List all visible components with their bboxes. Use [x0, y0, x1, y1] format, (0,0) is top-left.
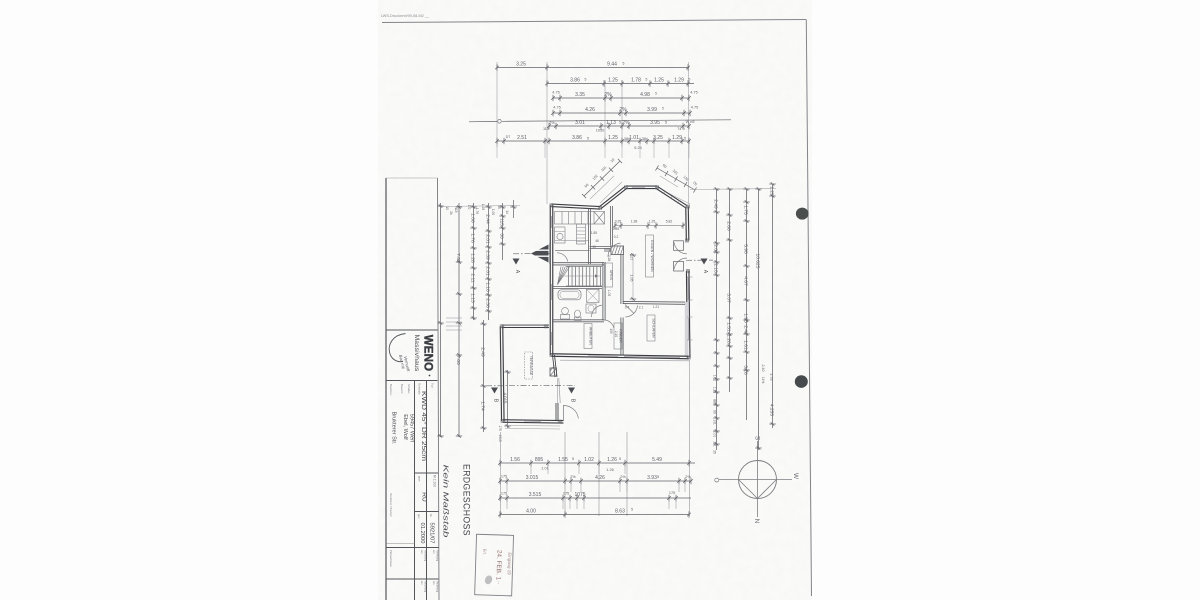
- svg-text:3.26: 3.26: [742, 365, 748, 375]
- svg-text:1.16: 1.16: [484, 282, 490, 292]
- svg-text:0.2: 0.2: [614, 235, 619, 239]
- svg-text:0.4: 0.4: [625, 306, 630, 310]
- svg-text:5: 5: [657, 475, 659, 479]
- svg-text:5: 5: [631, 508, 633, 512]
- svg-text:3.95: 3.95: [650, 120, 660, 126]
- svg-text:115: 115: [454, 207, 458, 212]
- svg-text:1.61: 1.61: [742, 340, 748, 350]
- svg-text:1.26: 1.26: [606, 468, 613, 472]
- svg-text:1.25: 1.25: [768, 186, 774, 196]
- svg-text:99: 99: [713, 410, 717, 414]
- svg-text:1.25: 1.25: [649, 220, 656, 224]
- svg-text:5: 5: [619, 121, 621, 125]
- svg-text:115: 115: [498, 218, 504, 226]
- svg-text:W: W: [792, 473, 799, 480]
- svg-text:1050: 1050: [596, 129, 604, 133]
- svg-text:Bearbeiter / Bauherr: Bearbeiter / Bauherr: [389, 493, 393, 516]
- svg-text:46: 46: [595, 239, 599, 243]
- svg-text:1.38: 1.38: [631, 220, 638, 224]
- svg-text:10: 10: [592, 245, 596, 249]
- svg-text:1.26: 1.26: [725, 334, 731, 344]
- svg-text:5: 5: [684, 137, 686, 141]
- svg-text:3.25: 3.25: [653, 135, 663, 141]
- svg-text:Änderung: Änderung: [424, 581, 428, 593]
- svg-text:2%: 2%: [622, 120, 630, 126]
- svg-text:5: 5: [585, 78, 587, 82]
- svg-text:Bauort:: Bauort:: [400, 384, 404, 394]
- svg-text:35: 35: [713, 450, 717, 454]
- svg-text:1.21: 1.21: [653, 305, 659, 309]
- svg-text:TERRASSE: TERRASSE: [529, 356, 533, 376]
- svg-text:KWD 45° DR 25cm: KWD 45° DR 25cm: [420, 391, 428, 462]
- svg-text:4.75: 4.75: [690, 91, 697, 95]
- svg-text:2%: 2%: [619, 107, 627, 113]
- svg-text:1075: 1075: [574, 492, 585, 498]
- svg-text:Straße:: Straße:: [407, 384, 411, 394]
- svg-text:14: 14: [505, 210, 509, 214]
- svg-text:1.29: 1.29: [672, 135, 682, 141]
- svg-text:1.00: 1.00: [491, 209, 495, 215]
- svg-text:2.36: 2.36: [484, 298, 490, 308]
- svg-text:2.10: 2.10: [614, 331, 618, 337]
- svg-text:2%: 2%: [620, 475, 626, 479]
- svg-text:2.11: 2.11: [469, 273, 475, 282]
- svg-text:2%: 2%: [604, 92, 612, 98]
- svg-text:1.26: 1.26: [607, 457, 617, 463]
- svg-text:24. FEB. 1··: 24. FEB. 1··: [494, 550, 502, 585]
- svg-text:Ebel, Wolf: Ebel, Wolf: [402, 414, 408, 440]
- svg-text:4.26: 4.26: [595, 475, 605, 481]
- svg-text:0.85: 0.85: [613, 227, 619, 231]
- svg-text:1.01: 1.01: [713, 375, 717, 382]
- svg-text:895: 895: [535, 457, 544, 463]
- svg-text:1.06: 1.06: [469, 213, 475, 223]
- svg-text:Nr.: Nr.: [429, 514, 433, 518]
- svg-text:5.26: 5.26: [634, 146, 641, 150]
- svg-text:1.55: 1.55: [558, 457, 568, 463]
- svg-text:38: 38: [642, 137, 646, 141]
- svg-text:SCHLAFEN: SCHLAFEN: [652, 318, 656, 338]
- svg-text:2.51: 2.51: [517, 135, 527, 141]
- svg-text:1.78: 1.78: [631, 78, 641, 84]
- svg-text:1.13: 1.13: [606, 120, 616, 126]
- svg-text:2.40: 2.40: [742, 325, 748, 335]
- svg-text:4.75: 4.75: [553, 106, 560, 110]
- svg-text:Änderung: Änderung: [424, 550, 428, 562]
- svg-text:5.82: 5.82: [666, 220, 673, 224]
- svg-text:74 0: 74 0: [677, 127, 684, 131]
- svg-text:3.86: 3.86: [572, 135, 582, 141]
- svg-text:30: 30: [498, 233, 504, 239]
- svg-text:2.66: 2.66: [725, 221, 731, 231]
- svg-text:1.01: 1.01: [541, 467, 548, 471]
- svg-text:5: 5: [655, 91, 657, 95]
- svg-text:2.44: 2.44: [484, 214, 490, 224]
- svg-text:1.85: 1.85: [591, 231, 597, 235]
- svg-text:1.05: 1.05: [607, 290, 611, 297]
- svg-text:7.00: 7.00: [455, 355, 461, 365]
- svg-text:5: 5: [587, 137, 589, 141]
- svg-text:Erl.: Erl.: [482, 549, 487, 555]
- svg-text:1.13: 1.13: [469, 293, 475, 303]
- svg-text:am: am: [432, 581, 435, 584]
- svg-text:3.35: 3.35: [575, 92, 585, 98]
- svg-text:5.98: 5.98: [742, 244, 748, 254]
- svg-text:175: 175: [498, 425, 502, 431]
- svg-text:ERDGESCHOSS: ERDGESCHOSS: [461, 464, 472, 536]
- svg-text:Eingang 19: Eingang 19: [507, 552, 513, 575]
- svg-text:4.67: 4.67: [742, 276, 748, 286]
- svg-text:5: 5: [619, 457, 621, 461]
- svg-text:105: 105: [609, 328, 613, 334]
- svg-text:ARBEITEN: ARBEITEN: [589, 327, 593, 345]
- svg-text:4.75: 4.75: [691, 106, 698, 110]
- svg-text:175: 175: [501, 492, 507, 496]
- svg-text:Änderung: Änderung: [436, 581, 440, 593]
- svg-text:KINDER: KINDER: [619, 329, 623, 343]
- svg-text:Brukterer Str.: Brukterer Str.: [391, 412, 397, 445]
- svg-text:3.07: 3.07: [725, 293, 731, 303]
- svg-text:1.51: 1.51: [725, 322, 731, 332]
- svg-text:0.25: 0.25: [615, 220, 622, 224]
- svg-text:5: 5: [623, 62, 625, 66]
- svg-text:38: 38: [624, 137, 628, 141]
- svg-text:Planverfasser: Planverfasser: [389, 550, 393, 567]
- svg-text:2%: 2%: [685, 475, 691, 479]
- svg-text:2%: 2%: [549, 121, 555, 125]
- svg-text:A: A: [702, 270, 708, 274]
- svg-text:2.07: 2.07: [629, 254, 633, 260]
- svg-text:am: am: [432, 550, 435, 553]
- svg-text:2%: 2%: [570, 475, 576, 479]
- svg-text:1.75: 1.75: [742, 205, 748, 215]
- svg-text:1.56: 1.56: [510, 457, 520, 463]
- svg-text:2.1: 2.1: [639, 306, 644, 310]
- svg-text:1.29: 1.29: [674, 78, 684, 84]
- svg-text:1.28: 1.28: [481, 204, 485, 210]
- svg-text:4.98: 4.98: [640, 92, 650, 98]
- svg-text:Typ: Typ: [431, 383, 435, 388]
- svg-text:175: 175: [563, 492, 569, 496]
- svg-text:5: 5: [665, 121, 667, 125]
- svg-text:RU: RU: [421, 492, 428, 502]
- svg-text:2.01: 2.01: [713, 431, 717, 438]
- svg-text:S: S: [754, 436, 761, 441]
- svg-text:1.25: 1.25: [654, 78, 664, 84]
- svg-text:4.75: 4.75: [769, 374, 773, 381]
- svg-text:10: 10: [445, 206, 449, 210]
- svg-text:175: 175: [669, 491, 675, 495]
- svg-text:M 1:100: M 1:100: [433, 475, 437, 487]
- svg-text:1.26: 1.26: [713, 387, 717, 394]
- svg-text:9.44: 9.44: [607, 62, 617, 68]
- svg-text:5921/07: 5921/07: [429, 523, 435, 544]
- svg-text:2.01: 2.01: [712, 244, 718, 254]
- svg-text:1.0: 1.0: [467, 205, 471, 210]
- svg-text:10.625: 10.625: [754, 254, 760, 269]
- svg-text:59457 Werl: 59457 Werl: [409, 414, 415, 443]
- svg-text:1.76: 1.76: [469, 233, 475, 243]
- svg-text:3.99: 3.99: [647, 107, 657, 113]
- svg-text:N: N: [753, 519, 760, 524]
- svg-text:W n5: W n5: [686, 120, 695, 124]
- svg-text:SPEIS: SPEIS: [609, 270, 613, 281]
- svg-text:3.515: 3.515: [529, 492, 542, 498]
- svg-text:1.55: 1.55: [742, 313, 748, 323]
- svg-text:ESSEN / WOHNEN: ESSEN / WOHNEN: [650, 240, 654, 272]
- svg-text:2.01: 2.01: [484, 266, 490, 276]
- svg-text:2.49: 2.49: [479, 347, 485, 357]
- svg-text:5: 5: [662, 107, 664, 111]
- svg-text:8.63: 8.63: [615, 509, 625, 515]
- svg-text:101: 101: [713, 441, 717, 447]
- svg-text:2.40: 2.40: [761, 365, 765, 372]
- svg-text:LWS-Druckerei/99-08-M2 __: LWS-Druckerei/99-08-M2 __: [381, 14, 430, 18]
- svg-text:14%: 14%: [761, 377, 765, 384]
- svg-text:5: 5: [689, 78, 691, 82]
- svg-text:B: B: [493, 399, 499, 403]
- svg-text:1.74: 1.74: [479, 401, 485, 411]
- svg-text:3.93: 3.93: [647, 475, 657, 481]
- svg-text:885: 885: [713, 399, 717, 405]
- svg-text:5: 5: [572, 457, 574, 461]
- svg-text:1015: 1015: [498, 434, 502, 442]
- svg-text:1.25: 1.25: [608, 135, 618, 141]
- svg-text:3.86: 3.86: [570, 78, 580, 84]
- svg-text:2.18: 2.18: [712, 263, 718, 273]
- svg-text:2k: 2k: [449, 211, 453, 215]
- svg-text:2.49: 2.49: [712, 199, 718, 209]
- svg-text:A: A: [514, 270, 520, 274]
- svg-text:01.2000: 01.2000: [419, 523, 425, 544]
- svg-text:3.25: 3.25: [516, 62, 526, 68]
- svg-text:30: 30: [497, 205, 501, 209]
- svg-text:3.015: 3.015: [526, 475, 539, 481]
- svg-text:2.28: 2.28: [607, 255, 611, 262]
- svg-text:1.05: 1.05: [630, 275, 634, 282]
- svg-text:am: am: [420, 550, 423, 553]
- svg-text:4.00: 4.00: [526, 509, 536, 515]
- svg-text:Änderung: Änderung: [436, 550, 440, 562]
- svg-text:D7: D7: [506, 135, 511, 139]
- svg-text:WENO: WENO: [422, 335, 434, 372]
- svg-text:4.255: 4.255: [768, 404, 774, 417]
- svg-text:1.02: 1.02: [584, 457, 594, 463]
- svg-text:2.01: 2.01: [484, 234, 490, 244]
- svg-text:gepr: gepr: [418, 476, 422, 482]
- svg-text:Bauherr:: Bauherr:: [389, 384, 393, 396]
- svg-text:115: 115: [543, 127, 549, 131]
- svg-text:1.76: 1.76: [475, 208, 479, 214]
- svg-text:O: O: [713, 477, 720, 482]
- svg-text:1.28: 1.28: [469, 253, 475, 263]
- svg-text:2.39: 2.39: [484, 250, 490, 260]
- svg-text:1.01: 1.01: [629, 135, 639, 141]
- svg-text:1.25: 1.25: [608, 78, 618, 84]
- svg-text:5.49: 5.49: [652, 457, 662, 463]
- svg-text:175: 175: [501, 475, 507, 479]
- svg-text:5: 5: [646, 78, 648, 82]
- svg-text:Massivhaus: Massivhaus: [413, 335, 420, 372]
- svg-text:gez: gez: [417, 514, 421, 519]
- svg-text:am: am: [420, 581, 423, 584]
- svg-text:4.26: 4.26: [585, 107, 595, 113]
- svg-text:B: B: [570, 399, 576, 403]
- svg-text:4.75: 4.75: [552, 91, 559, 95]
- svg-text:7.55: 7.55: [455, 253, 461, 263]
- svg-text:Kein Maßstab: Kein Maßstab: [442, 465, 451, 538]
- svg-text:101: 101: [713, 419, 717, 425]
- svg-text:3.01: 3.01: [575, 120, 585, 126]
